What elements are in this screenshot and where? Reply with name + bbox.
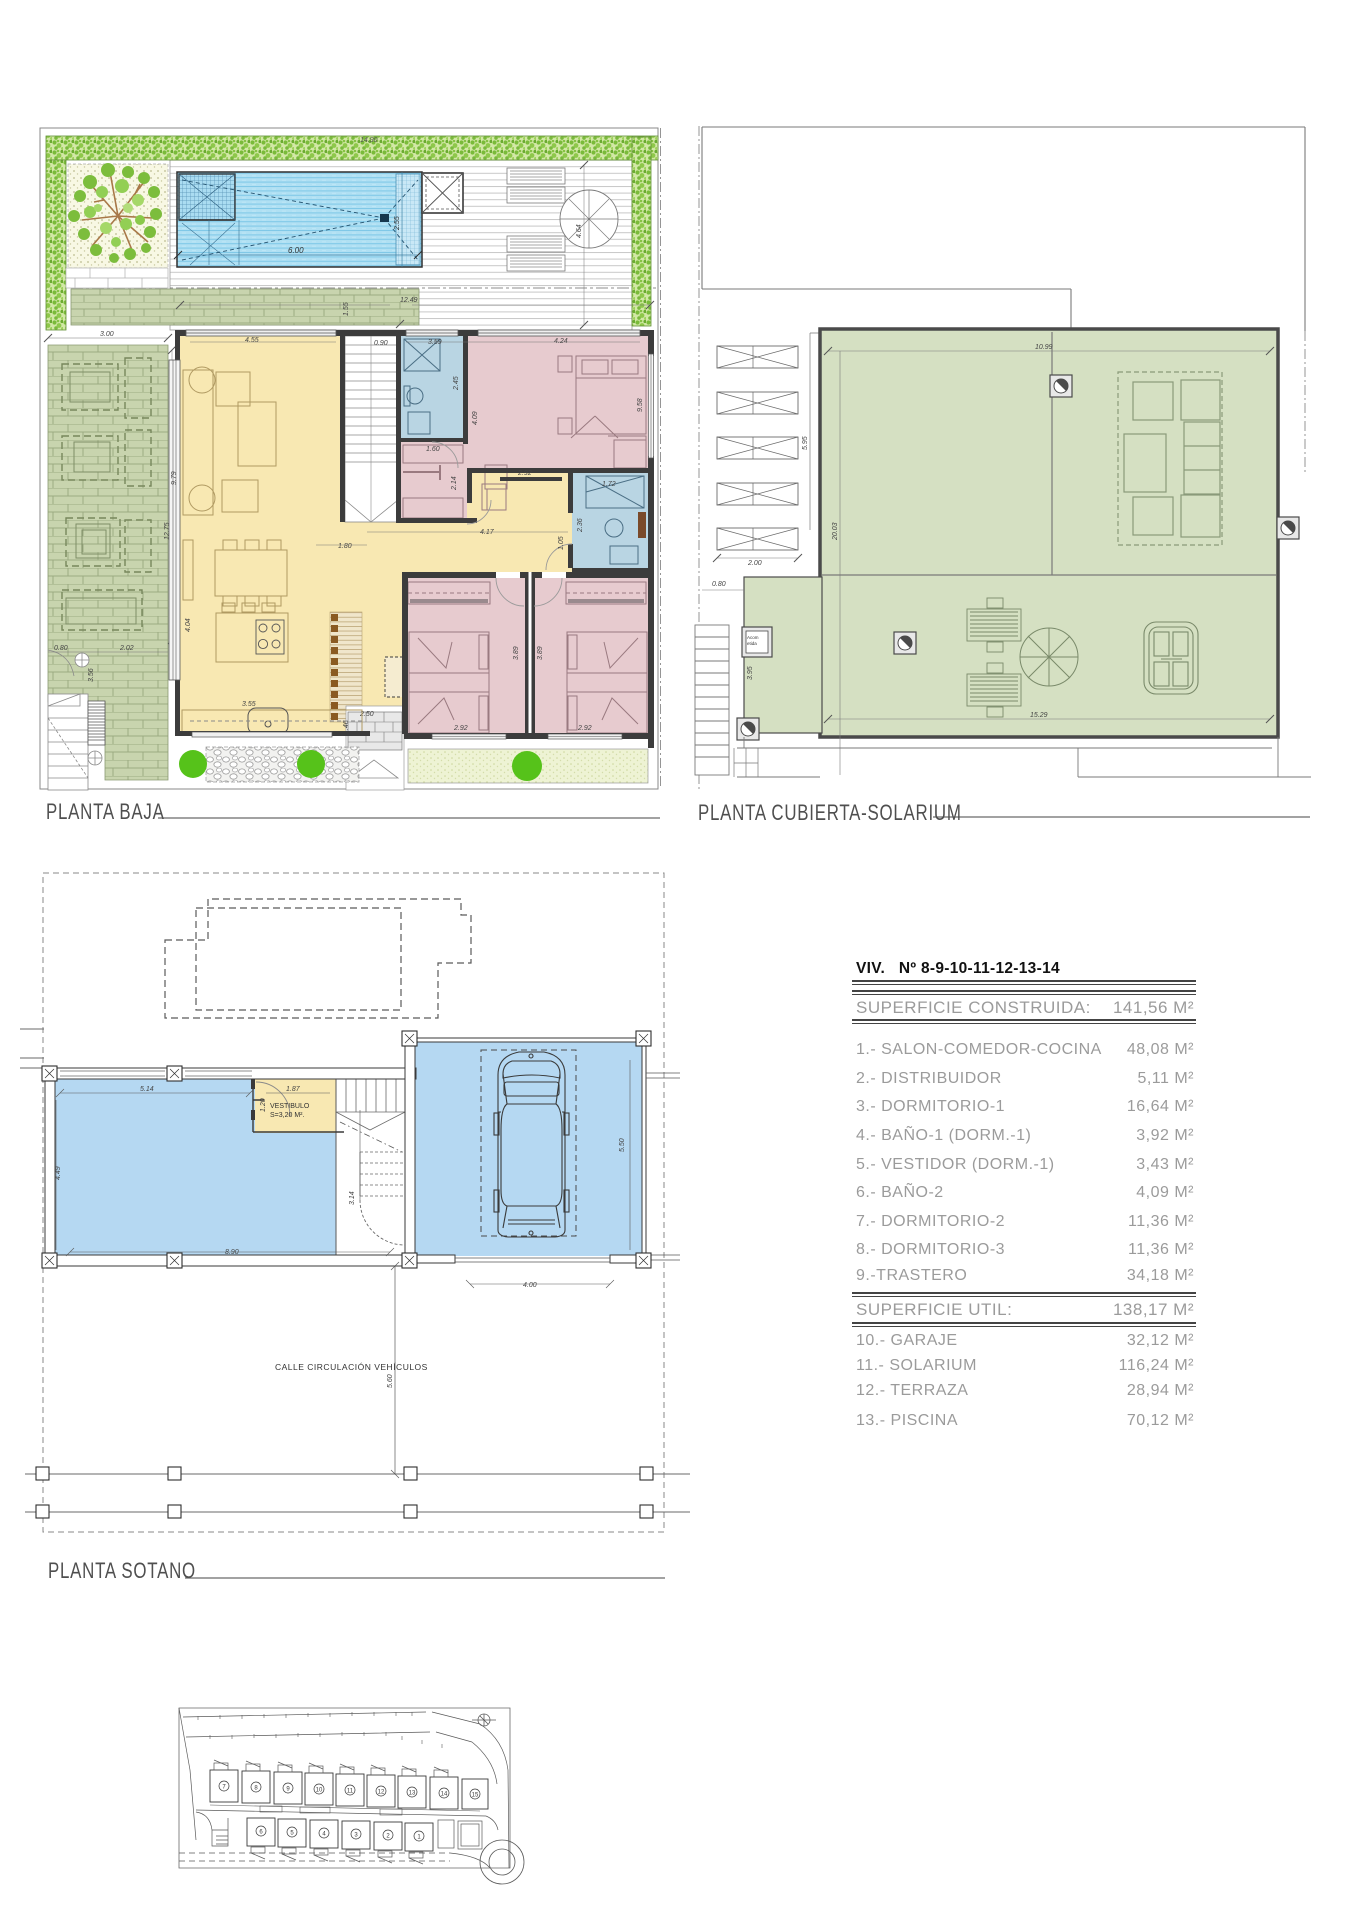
svg-text:1.05: 1.05 [558,536,565,550]
svg-text:10: 10 [316,1788,323,1794]
svg-text:1.55: 1.55 [343,302,350,316]
svg-text:Acom: Acom [747,635,759,640]
svg-text:12: 12 [378,1790,385,1796]
svg-text:14: 14 [441,1792,448,1798]
svg-text:2.00: 2.00 [747,560,762,567]
svg-text:0.80: 0.80 [712,581,726,588]
svg-text:1.87: 1.87 [286,1086,301,1093]
svg-text:3.59: 3.59 [428,339,442,346]
svg-text:3.55: 3.55 [242,701,256,708]
svg-text:6.00: 6.00 [288,246,304,255]
svg-text:11: 11 [347,1789,354,1795]
svg-text:8.90: 8.90 [225,1249,239,1256]
svg-text:20.03: 20.03 [832,522,839,541]
svg-text:4.64: 4.64 [576,224,583,238]
svg-text:5.50: 5.50 [619,1138,626,1152]
svg-text:3.95: 3.95 [747,666,754,680]
svg-text:10.99: 10.99 [1035,344,1053,351]
svg-text:etida: etida [747,641,757,646]
svg-text:4.17: 4.17 [480,529,495,536]
svg-text:5.95: 5.95 [802,436,809,450]
svg-text:5.14: 5.14 [140,1086,154,1093]
svg-text:9.58: 9.58 [637,398,644,412]
svg-text:3.89: 3.89 [513,646,520,660]
svg-text:14.90: 14.90 [360,137,378,144]
svg-text:4.04: 4.04 [185,618,192,632]
svg-text:15.29: 15.29 [1030,712,1048,719]
svg-text:0.80: 0.80 [54,645,68,652]
svg-text:1.72: 1.72 [602,481,616,488]
svg-text:12.49: 12.49 [400,297,418,304]
svg-text:2.92: 2.92 [453,725,468,732]
svg-text:1.60: 1.60 [426,446,440,453]
svg-text:VESTIBULO: VESTIBULO [270,1103,310,1110]
svg-text:13: 13 [409,1791,416,1797]
svg-text:4.24: 4.24 [554,338,568,345]
svg-text:3.14: 3.14 [349,1191,356,1205]
svg-text:1.20: 1.20 [260,1098,267,1112]
svg-text:2.92: 2.92 [517,470,532,477]
svg-text:4.09: 4.09 [472,411,479,425]
svg-text:2.36: 2.36 [577,518,584,533]
svg-text:4.55: 4.55 [245,337,259,344]
svg-text:3.00: 3.00 [100,331,114,338]
svg-text:15: 15 [472,1793,479,1799]
svg-text:1.80: 1.80 [338,543,352,550]
svg-text:4.00: 4.00 [523,1282,537,1289]
svg-text:5.60: 5.60 [387,1374,394,1388]
svg-text:2.55: 2.55 [394,216,401,231]
svg-text:2.92: 2.92 [577,725,592,732]
svg-text:S=3,20 M².: S=3,20 M². [270,1112,304,1119]
svg-text:2.02: 2.02 [119,645,134,652]
svg-text:3.56: 3.56 [88,668,95,682]
svg-text:2.45: 2.45 [453,376,460,391]
svg-text:2.14: 2.14 [451,476,458,491]
svg-text:9.79: 9.79 [171,471,178,485]
svg-text:0.90: 0.90 [374,340,388,347]
svg-text:2.50: 2.50 [359,711,374,718]
svg-text:CALLE CIRCULACIÓN VEHÍCULOS: CALLE CIRCULACIÓN VEHÍCULOS [275,1362,428,1372]
svg-text:3.89: 3.89 [537,646,544,660]
